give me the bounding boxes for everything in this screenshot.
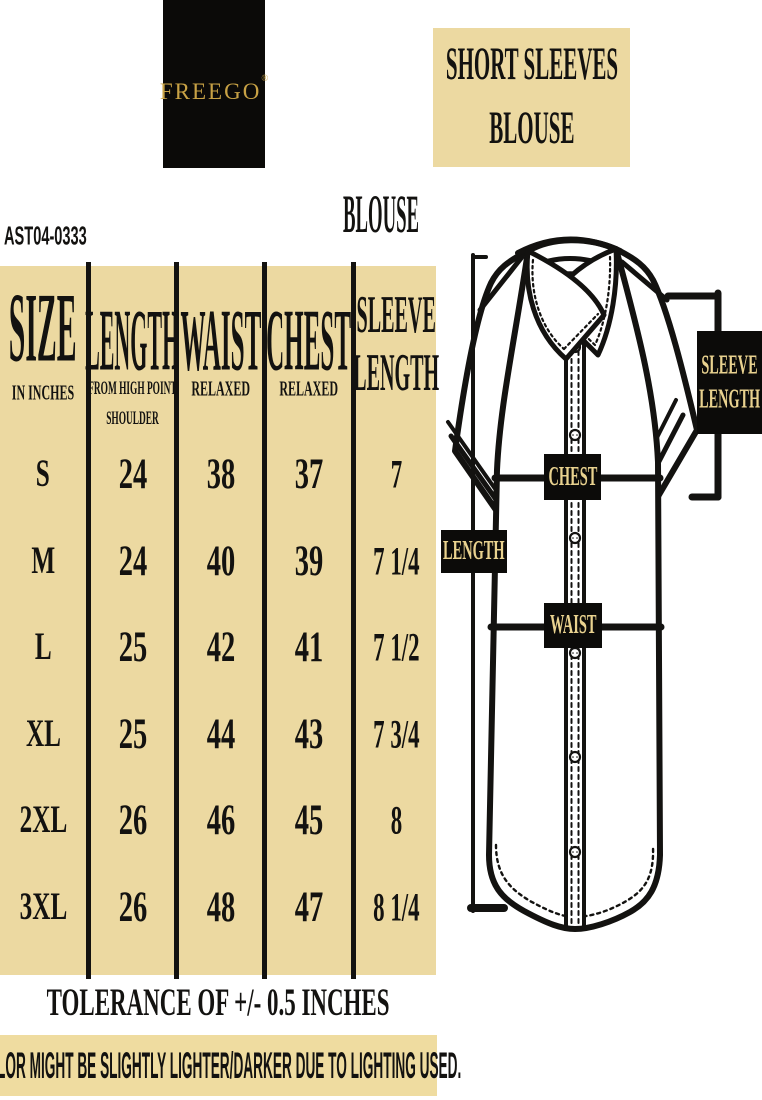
column-subtitle: RELAXED bbox=[191, 378, 250, 402]
sleeve-length-label: SLEEVE LENGTH bbox=[697, 331, 762, 434]
table-cell: 24 bbox=[91, 432, 174, 519]
length-label: LENGTH bbox=[441, 530, 507, 573]
waist-label: WAIST bbox=[544, 603, 602, 648]
diagram-title-line2: BLOUSE bbox=[489, 103, 574, 156]
table-cell: 7 bbox=[356, 432, 436, 519]
table-cell: 2XL bbox=[0, 778, 86, 865]
diagram-title-line1: SHORT SLEEVES bbox=[445, 39, 617, 92]
table-cell: 37 bbox=[267, 432, 351, 519]
table-cell: 26 bbox=[91, 778, 174, 865]
table-cell: 7 1/2 bbox=[356, 605, 436, 692]
registered-mark: ® bbox=[261, 73, 268, 83]
column-subtitle: RELAXED bbox=[280, 378, 339, 402]
table-cell: 8 1/4 bbox=[356, 865, 436, 952]
column-subtitle: SHOULDER bbox=[106, 406, 159, 429]
table-cell: XL bbox=[0, 692, 86, 779]
table-cell: 7 1/4 bbox=[356, 519, 436, 606]
column-title: SIZE bbox=[9, 272, 77, 385]
table-column-length: LENGTH FROM HIGH POINT SHOULDER 24 24 25… bbox=[91, 266, 174, 975]
table-cell: 8 bbox=[356, 778, 436, 865]
table-cell: 47 bbox=[267, 865, 351, 952]
table-cell: 39 bbox=[267, 519, 351, 606]
brand-logo-text: FREEGO® bbox=[160, 73, 268, 105]
table-cell: 38 bbox=[179, 432, 262, 519]
table-cell: 25 bbox=[91, 605, 174, 692]
table-cell: 7 3/4 bbox=[356, 692, 436, 779]
table-column-chest: CHEST RELAXED 37 39 41 43 45 47 bbox=[267, 266, 351, 975]
table-cell: 3XL bbox=[0, 865, 86, 952]
table-cell: 26 bbox=[91, 865, 174, 952]
table-cell: 25 bbox=[91, 692, 174, 779]
column-title: LENGTH bbox=[353, 344, 439, 404]
table-cell: 41 bbox=[267, 605, 351, 692]
diagram-title-box: SHORT SLEEVES BLOUSE bbox=[433, 28, 630, 167]
table-cell: L bbox=[0, 605, 86, 692]
disclaimer-bar: COLOR MIGHT BE SLIGHTLY LIGHTER/DARKER D… bbox=[0, 1035, 437, 1096]
table-column-sleeve-length: SLEEVE LENGTH 7 7 1/4 7 1/2 7 3/4 8 8 1/… bbox=[356, 266, 436, 975]
table-cell: M bbox=[0, 519, 86, 606]
column-title: CHEST bbox=[266, 289, 351, 391]
table-column-size: SIZE IN INCHES S M L XL 2XL 3XL bbox=[0, 266, 86, 975]
table-cell: 24 bbox=[91, 519, 174, 606]
column-subtitle: FROM HIGH POINT bbox=[88, 376, 176, 399]
chest-label: CHEST bbox=[544, 454, 601, 500]
column-title: WAIST bbox=[180, 289, 261, 391]
column-subtitle: IN INCHES bbox=[12, 382, 74, 406]
size-chart-page: FREEGO® BLOUSE AST04-0333 SHORT SLEEVES … bbox=[0, 0, 762, 1100]
brand-logo: FREEGO® bbox=[163, 0, 265, 168]
table-column-waist: WAIST RELAXED 38 40 42 44 46 48 bbox=[179, 266, 262, 975]
table-cell: 42 bbox=[179, 605, 262, 692]
size-table: SIZE IN INCHES S M L XL 2XL 3XL LENGTH F… bbox=[0, 266, 436, 975]
table-cell: 48 bbox=[179, 865, 262, 952]
table-cell: 44 bbox=[179, 692, 262, 779]
table-cell: 46 bbox=[179, 778, 262, 865]
table-cell: 45 bbox=[267, 778, 351, 865]
table-cell: S bbox=[0, 432, 86, 519]
table-cell: 43 bbox=[267, 692, 351, 779]
column-title: SLEEVE bbox=[356, 286, 435, 346]
table-cell: 40 bbox=[179, 519, 262, 606]
